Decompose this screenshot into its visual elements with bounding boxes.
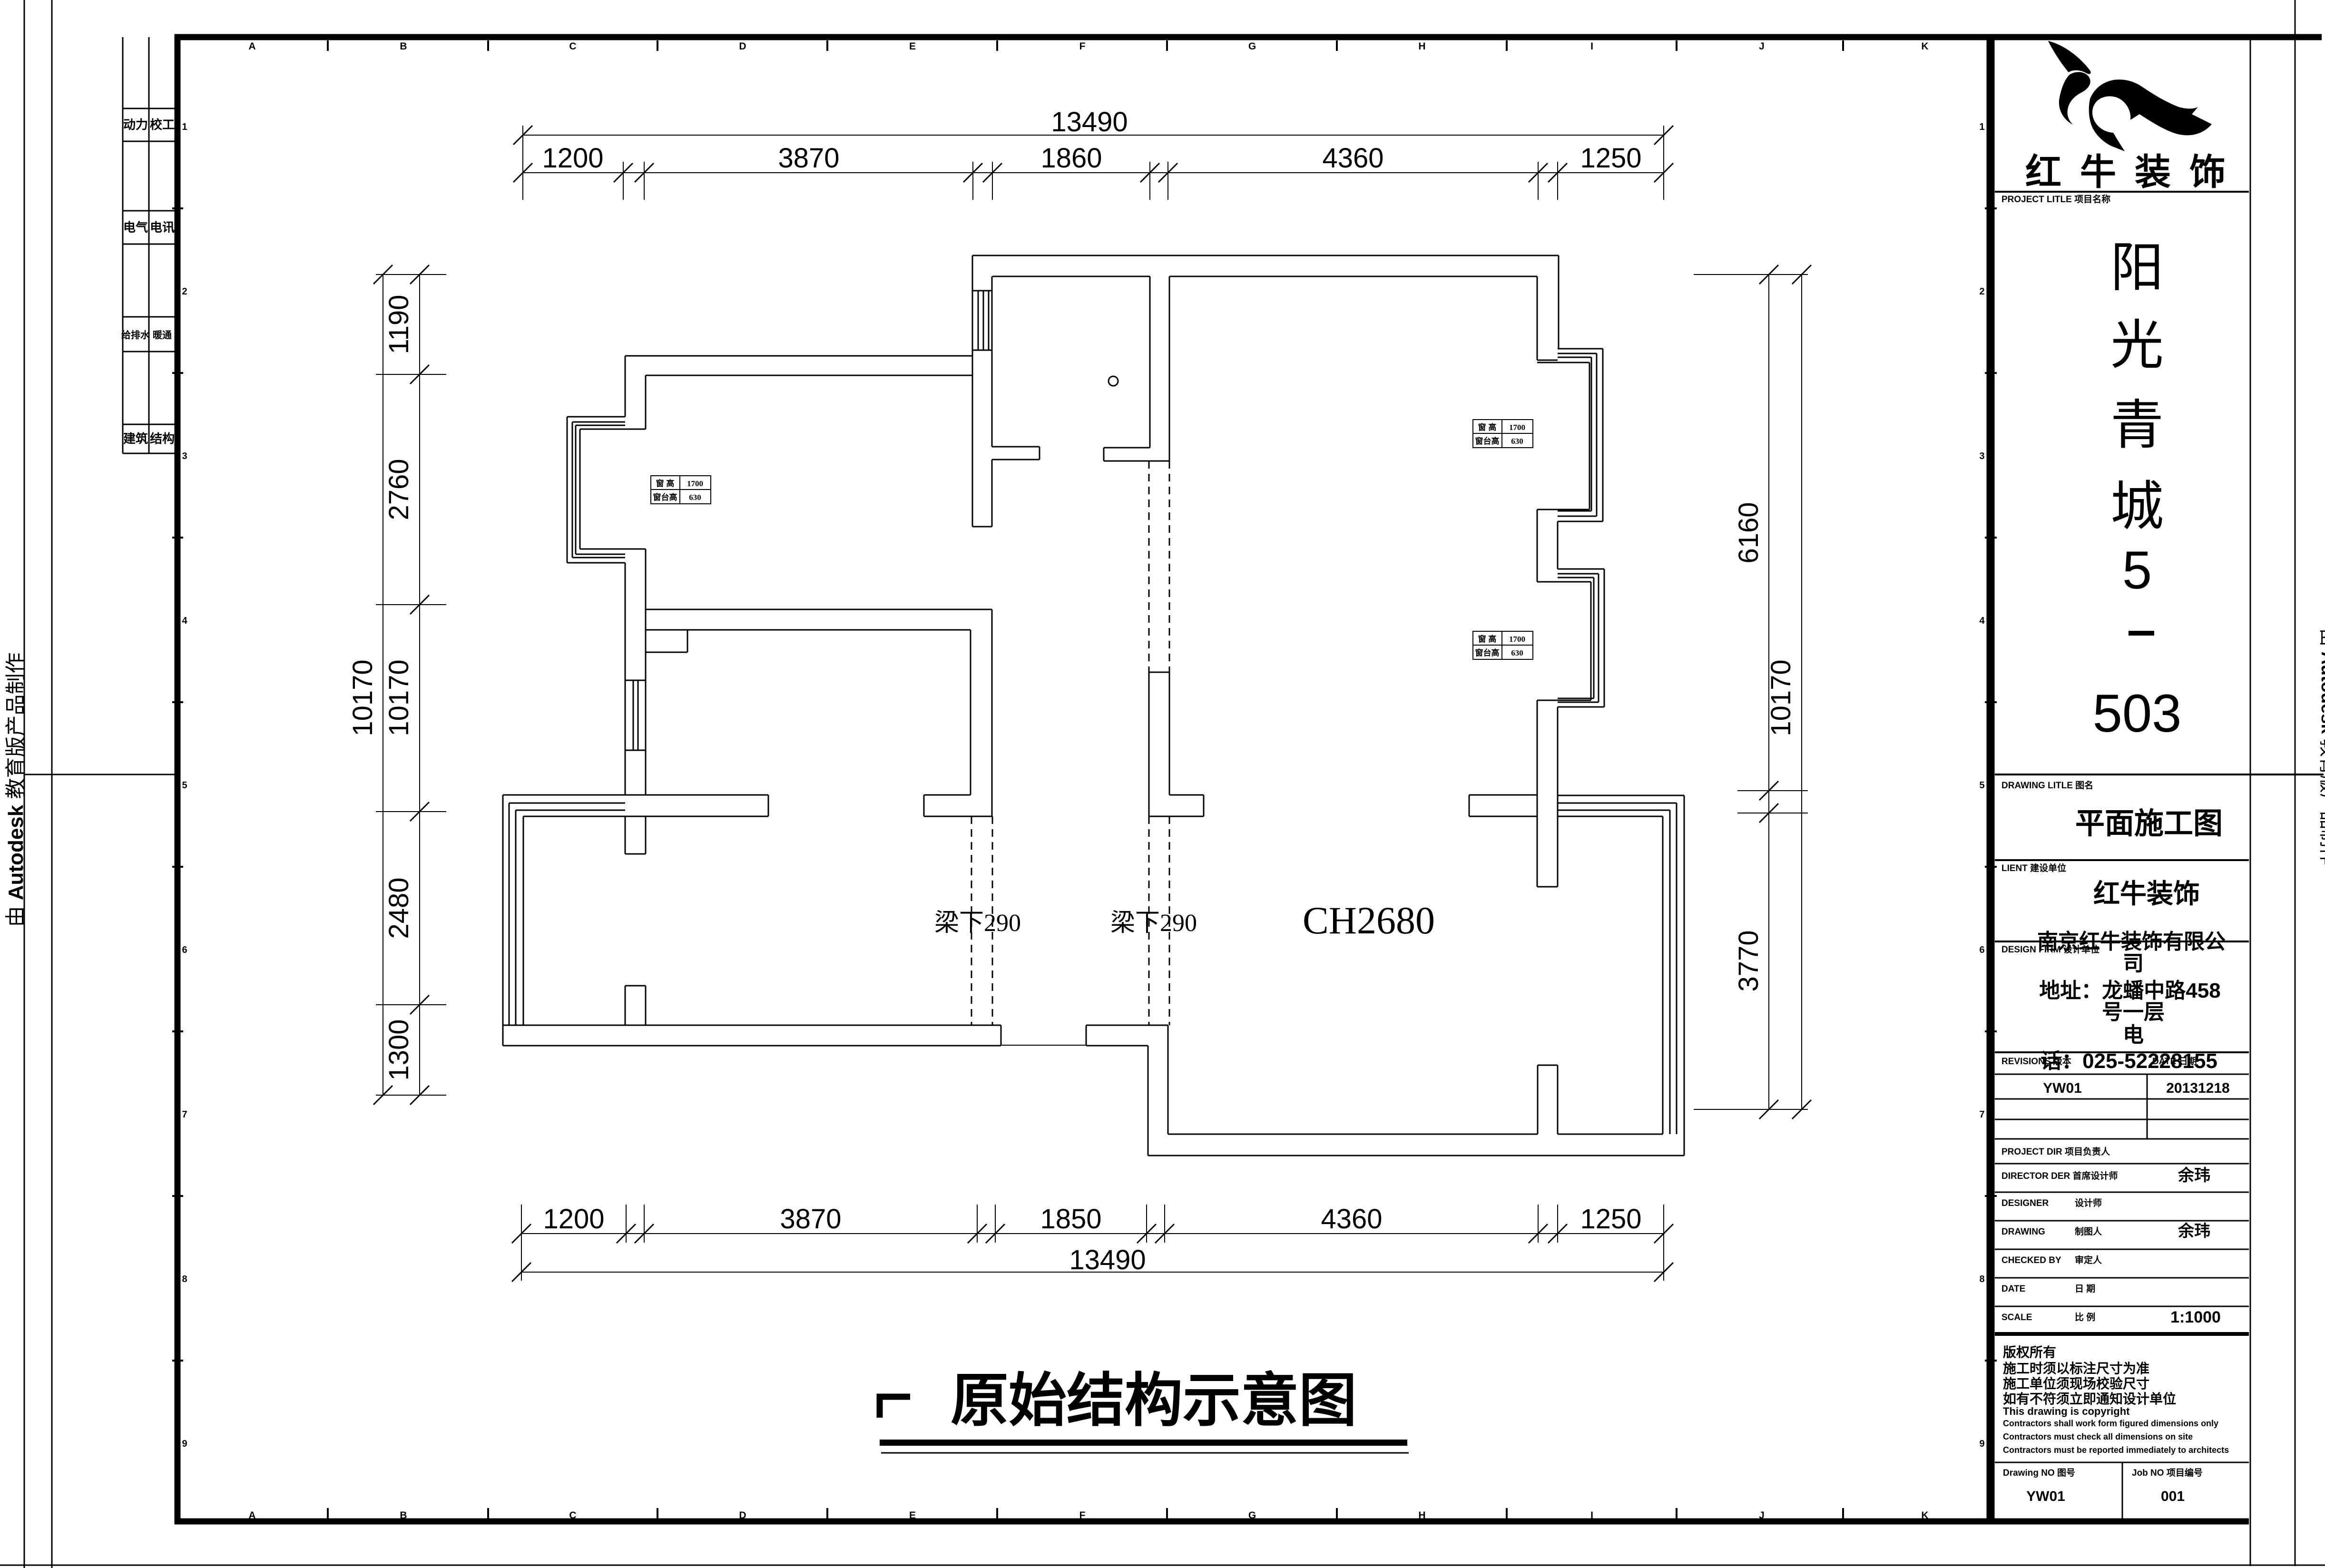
svg-text:K: K — [1921, 1510, 1928, 1521]
svg-text:F: F — [1079, 41, 1086, 52]
svg-text:余玮: 余玮 — [2178, 1166, 2210, 1185]
svg-text:DIRECTOR DER 首席设计师: DIRECTOR DER 首席设计师 — [2001, 1170, 2118, 1181]
svg-text:B: B — [400, 1510, 407, 1521]
svg-text:10170: 10170 — [383, 659, 414, 736]
svg-text:窗 高: 窗 高 — [656, 479, 675, 488]
svg-text:饰: 饰 — [2189, 152, 2226, 193]
svg-text:630: 630 — [1511, 648, 1523, 657]
svg-text:司: 司 — [2123, 952, 2144, 975]
svg-text:8: 8 — [1979, 1274, 1984, 1284]
svg-text:DATE: DATE — [2001, 1284, 2025, 1294]
svg-text:This drawing is copyright: This drawing is copyright — [2003, 1405, 2130, 1417]
svg-text:E: E — [909, 41, 916, 52]
svg-text:Drawing NO 图号: Drawing NO 图号 — [2003, 1468, 2075, 1478]
svg-text:窗台高: 窗台高 — [1475, 648, 1500, 657]
svg-text:设计师: 设计师 — [2075, 1198, 2102, 1208]
svg-text:K: K — [1921, 41, 1928, 52]
svg-text:红: 红 — [2025, 152, 2061, 193]
svg-text:3: 3 — [182, 451, 187, 461]
svg-text:10170: 10170 — [347, 659, 378, 736]
svg-text:DESIGNER: DESIGNER — [2001, 1198, 2049, 1208]
svg-text:4: 4 — [182, 616, 187, 626]
svg-text:由 Autodesk 教育版产品制作: 由 Autodesk 教育版产品制作 — [4, 653, 28, 927]
svg-text:窗台高: 窗台高 — [653, 492, 677, 502]
svg-text:平面施工图: 平面施工图 — [2075, 807, 2223, 840]
svg-text:F: F — [1079, 1510, 1086, 1521]
svg-text:1300: 1300 — [383, 1019, 414, 1080]
svg-text:D: D — [739, 1510, 746, 1521]
svg-text:7: 7 — [182, 1109, 187, 1120]
svg-text:1700: 1700 — [1509, 635, 1525, 644]
svg-text:REVISIONS 版本: REVISIONS 版本 — [2001, 1056, 2071, 1067]
svg-text:I: I — [1590, 1510, 1593, 1521]
svg-text:Job NO 项目编号: Job NO 项目编号 — [2132, 1467, 2203, 1478]
svg-text:1190: 1190 — [383, 295, 414, 354]
svg-text:3: 3 — [1979, 451, 1984, 461]
svg-text:梁下290: 梁下290 — [1110, 910, 1197, 937]
svg-text:1200: 1200 — [542, 143, 603, 174]
svg-text:8: 8 — [182, 1274, 187, 1284]
svg-text:503: 503 — [2093, 684, 2182, 743]
svg-text:结构: 结构 — [150, 431, 175, 446]
svg-text:9: 9 — [182, 1439, 187, 1449]
svg-text:CH2680: CH2680 — [1303, 899, 1435, 942]
svg-text:电气: 电气 — [123, 220, 148, 235]
svg-text:6: 6 — [1979, 945, 1984, 955]
svg-text:D: D — [739, 41, 746, 52]
svg-text:A: A — [248, 41, 255, 52]
svg-text:建筑: 建筑 — [123, 431, 148, 446]
svg-text:城: 城 — [2110, 477, 2164, 536]
svg-text:4: 4 — [1979, 616, 1985, 626]
svg-text:DESIGN FIRM 设计单位: DESIGN FIRM 设计单位 — [2001, 944, 2099, 955]
svg-text:LIENT 建设单位: LIENT 建设单位 — [2001, 862, 2066, 873]
svg-text:电讯: 电讯 — [150, 220, 175, 235]
svg-text:PROJECT DIR 项目负责人: PROJECT DIR 项目负责人 — [2001, 1146, 2110, 1157]
svg-text:9: 9 — [1979, 1439, 1984, 1449]
svg-text:由 Autodesk 教育版产品制作: 由 Autodesk 教育版产品制作 — [2317, 628, 2325, 865]
svg-text:DRAWING LITLE 图名: DRAWING LITLE 图名 — [2001, 780, 2093, 791]
svg-text:施工时须以标注尺寸为准: 施工时须以标注尺寸为准 — [2003, 1361, 2149, 1376]
svg-text:A: A — [248, 1510, 255, 1521]
svg-text:红牛装饰: 红牛装饰 — [2093, 879, 2200, 909]
svg-text:制图人: 制图人 — [2075, 1226, 2102, 1237]
svg-text:给排水: 给排水 — [121, 329, 150, 341]
svg-text:630: 630 — [1511, 437, 1523, 446]
svg-text:YW01: YW01 — [2026, 1489, 2065, 1504]
svg-text:B: B — [400, 41, 407, 52]
svg-text:1:1000: 1:1000 — [2170, 1308, 2221, 1326]
svg-text:H: H — [1418, 41, 1425, 52]
svg-text:3870: 3870 — [780, 1204, 841, 1235]
svg-text:原始结构示意图: 原始结构示意图 — [951, 1368, 1357, 1433]
svg-text:I: I — [1590, 41, 1593, 52]
svg-text:比 例: 比 例 — [2075, 1312, 2095, 1323]
svg-text:号一层: 号一层 — [2102, 1000, 2165, 1024]
svg-text:7: 7 — [1979, 1109, 1984, 1120]
svg-text:13490: 13490 — [1051, 107, 1128, 137]
svg-text:3770: 3770 — [1733, 930, 1764, 991]
svg-text:余玮: 余玮 — [2178, 1222, 2210, 1240]
svg-text:SCALE: SCALE — [2001, 1313, 2032, 1323]
svg-text:暖通: 暖通 — [153, 330, 172, 341]
svg-text:地址：龙蟠中路458: 地址：龙蟠中路458 — [2039, 979, 2220, 1002]
svg-text:Contractors shall work form fi: Contractors shall work form figured dime… — [2003, 1419, 2218, 1428]
svg-text:3870: 3870 — [778, 143, 839, 174]
svg-text:窗 高: 窗 高 — [1478, 634, 1497, 644]
svg-text:光: 光 — [2110, 315, 2164, 375]
svg-text:C: C — [569, 1510, 576, 1521]
svg-text:001: 001 — [2161, 1489, 2185, 1504]
svg-text:2480: 2480 — [383, 877, 414, 939]
svg-text:阳: 阳 — [2110, 238, 2164, 297]
svg-text:PROJECT LITLE 项目名称: PROJECT LITLE 项目名称 — [2001, 194, 2110, 205]
svg-text:CHECKED BY: CHECKED BY — [2001, 1255, 2061, 1265]
svg-text:1200: 1200 — [543, 1204, 604, 1235]
svg-text:4360: 4360 — [1321, 1204, 1382, 1235]
svg-text:4360: 4360 — [1322, 143, 1383, 174]
svg-text:1250: 1250 — [1580, 1204, 1641, 1235]
svg-text:H: H — [1418, 1510, 1425, 1521]
svg-text:C: C — [569, 41, 576, 52]
svg-text:J: J — [1759, 41, 1765, 52]
svg-text:牛: 牛 — [2080, 152, 2116, 193]
svg-text:1250: 1250 — [1580, 143, 1641, 174]
svg-text:动力: 动力 — [123, 118, 148, 132]
svg-text:1700: 1700 — [687, 479, 703, 488]
svg-text:装: 装 — [2135, 152, 2171, 193]
svg-text:YW01: YW01 — [2043, 1080, 2082, 1096]
svg-text:DRAWING: DRAWING — [2001, 1227, 2045, 1237]
svg-text:1850: 1850 — [1040, 1204, 1101, 1235]
svg-text:630: 630 — [689, 493, 701, 502]
svg-text:DATE 日期: DATE 日期 — [2152, 1056, 2197, 1067]
svg-text:J: J — [1759, 1510, 1765, 1521]
svg-text:校工: 校工 — [150, 118, 175, 132]
svg-text:6: 6 — [182, 945, 187, 955]
svg-text:G: G — [1248, 1510, 1256, 1521]
svg-text:电: 电 — [2123, 1023, 2144, 1047]
svg-text:6160: 6160 — [1733, 502, 1764, 563]
svg-text:13490: 13490 — [1069, 1245, 1146, 1275]
svg-text:窗台高: 窗台高 — [1475, 436, 1500, 446]
svg-text:2: 2 — [182, 286, 187, 297]
svg-text:Contractors must be reported i: Contractors must be reported immediately… — [2003, 1445, 2229, 1455]
svg-text:1: 1 — [1979, 122, 1984, 132]
svg-text:如有不符须立即通知设计单位: 如有不符须立即通知设计单位 — [2003, 1391, 2176, 1406]
svg-text:5: 5 — [182, 780, 187, 791]
svg-text:Contractors must check all dim: Contractors must check all dimensions on… — [2003, 1432, 2193, 1441]
svg-text:梁下290: 梁下290 — [934, 910, 1021, 937]
svg-text:2760: 2760 — [383, 459, 414, 520]
svg-text:5: 5 — [1979, 780, 1984, 791]
svg-text:E: E — [909, 1510, 916, 1521]
svg-text:1: 1 — [182, 122, 187, 132]
svg-text:窗 高: 窗 高 — [1478, 422, 1497, 432]
svg-text:5: 5 — [2122, 540, 2152, 600]
svg-text:版权所有: 版权所有 — [2003, 1345, 2056, 1360]
svg-text:1700: 1700 — [1509, 423, 1525, 432]
svg-text:10170: 10170 — [1766, 659, 1796, 736]
svg-text:青: 青 — [2110, 395, 2164, 455]
svg-text:审定人: 审定人 — [2075, 1254, 2102, 1265]
svg-text:2: 2 — [1979, 286, 1984, 297]
svg-text:20131218: 20131218 — [2166, 1080, 2229, 1096]
svg-text:G: G — [1248, 41, 1256, 52]
svg-text:施工单位须现场校验尺寸: 施工单位须现场校验尺寸 — [2003, 1376, 2149, 1391]
svg-text:1860: 1860 — [1040, 143, 1102, 174]
svg-text:日 期: 日 期 — [2075, 1284, 2095, 1294]
